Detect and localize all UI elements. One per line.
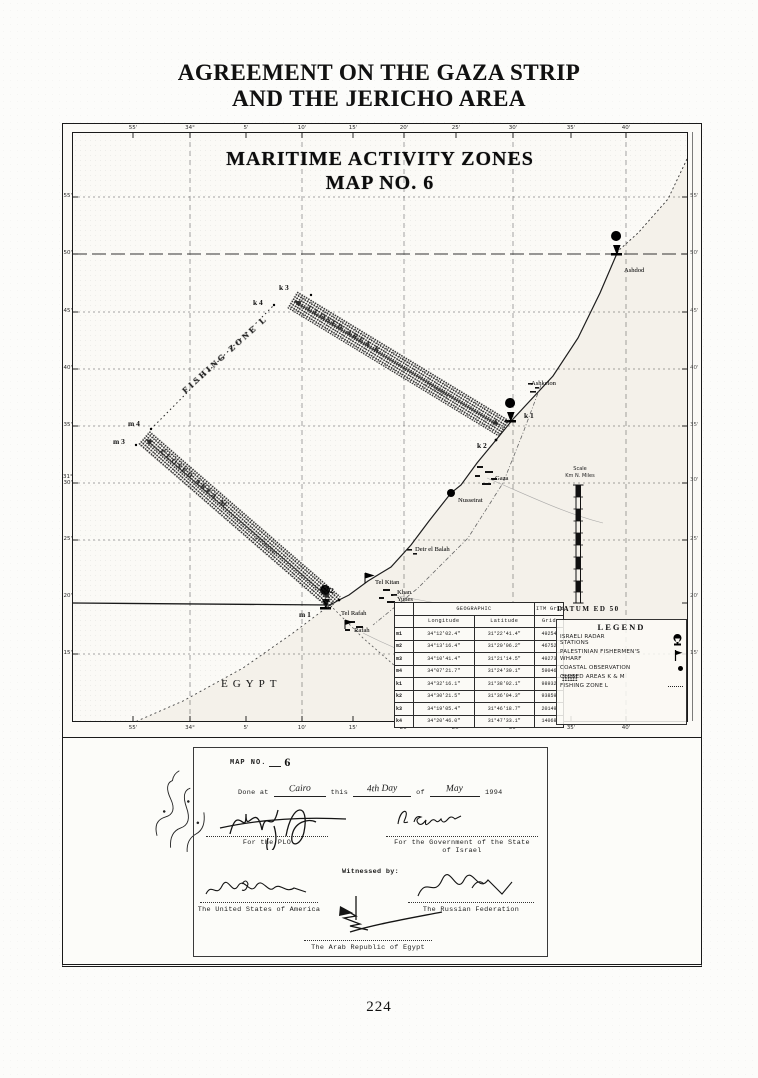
map-no-line: MAP NO. 6: [230, 757, 290, 767]
place-ashkelon: Ashkelon: [531, 380, 556, 387]
radar-station-icon: [672, 634, 683, 646]
coords-header-geographic: GEOGRAPHIC: [414, 603, 535, 616]
signature-panel: MAP NO. 6 Done at Cairo this 4th Day of …: [62, 737, 702, 967]
of-text: of: [416, 789, 425, 797]
handwritten-month: May: [446, 785, 463, 795]
axis-tick: 55': [129, 125, 138, 131]
egypt-maritime-line: [73, 603, 330, 605]
coord-cell: 34°10'41.4": [414, 653, 475, 666]
map-title-line2: MAP NO. 6: [73, 171, 687, 195]
fishing-zone-line-icon: [668, 686, 683, 687]
map-title: MARITIME ACTIVITY ZONES MAP NO. 6: [73, 147, 687, 195]
arrowhead-icon: [492, 419, 503, 429]
coord-cell: m3: [395, 653, 414, 666]
axis-tick: 40': [622, 725, 631, 731]
axis-tick: 34°: [185, 725, 195, 731]
map-no-blank: [269, 766, 281, 767]
legend-item-observation: COASTAL OBSERVATION: [560, 665, 683, 671]
legend-title: LEGEND: [560, 622, 683, 632]
coord-subheader: Longitude: [414, 615, 475, 628]
coord-cell: m1: [395, 628, 414, 641]
year-text: 1994: [485, 789, 503, 797]
coords-header-row: GEOGRAPHIC ITM Grid: [395, 603, 564, 616]
coord-row: k134°32'16.1"31°38'02.1"98932: [395, 678, 564, 691]
axis-tick: 15': [63, 650, 72, 656]
axis-tick: 30': [509, 125, 518, 131]
place-deir-el-balah: Deir el Balah: [415, 546, 450, 553]
coord-cell: m4: [395, 665, 414, 678]
axis-tick: 15': [349, 125, 358, 131]
axis-tick: 35': [63, 422, 72, 428]
legend-label: ISRAELI RADAR STATIONS: [560, 634, 605, 647]
legend-item-fishing-zone: FISHING ZONE L: [560, 683, 683, 689]
coord-cell: m2: [395, 640, 414, 653]
signature-rabin: [392, 804, 482, 832]
map-no-label: MAP NO.: [230, 759, 266, 767]
axis-tick: 10': [298, 725, 307, 731]
axis-tick: 25': [452, 125, 461, 131]
coord-cell: 31°36'04.3": [474, 690, 535, 703]
axis-tick: 35': [567, 725, 576, 731]
coord-cell: k3: [395, 703, 414, 716]
place-tel-kitan: Tel Kitan: [375, 579, 399, 586]
coord-cell: k2: [395, 690, 414, 703]
coord-cell: 31°20'06.2": [474, 640, 535, 653]
legend-label: COASTAL OBSERVATION: [560, 665, 630, 671]
axis-tick: 25': [63, 536, 72, 542]
point-m2: m 2: [322, 586, 334, 595]
axis-tick: 10': [298, 125, 307, 131]
coord-subheader: Latitude: [474, 615, 535, 628]
observation-dot-icon: [447, 489, 455, 497]
day-blank: 4th Day: [353, 778, 411, 797]
neatline-double: [692, 132, 693, 721]
axis-tick: 20': [63, 593, 72, 599]
legend-label: PALESTINIAN FISHERMEN'S WHARF: [560, 649, 640, 662]
place-nusseirat: Nusseirat: [458, 497, 483, 504]
coord-cell: 31°24'30.1": [474, 665, 535, 678]
coord-cell: [395, 615, 414, 628]
document-page: AGREEMENT ON THE GAZA STRIP AND THE JERI…: [0, 0, 758, 1078]
document-title-line2: AND THE JERICHO AREA: [0, 86, 758, 112]
axis-tick: 15': [349, 725, 358, 731]
egypt-label: The Arab Republic of Egypt: [302, 944, 434, 952]
signature-line: [386, 836, 538, 837]
coord-row: m434°07'21.7"31°24'30.1"59046: [395, 665, 564, 678]
plo-label: For the PLO: [212, 839, 322, 847]
coord-cell: 34°07'21.7": [414, 665, 475, 678]
point-k4: k 4: [253, 298, 263, 307]
signature-line: [304, 940, 432, 941]
coord-cell: [395, 603, 414, 616]
axis-tick: 55': [63, 193, 72, 199]
signature-box: MAP NO. 6 Done at Cairo this 4th Day of …: [193, 747, 548, 957]
usa-label: The United States of America: [196, 906, 322, 914]
coord-row: m334°10'41.4"31°21'14.5"49273: [395, 653, 564, 666]
axis-tick: 40': [622, 125, 631, 131]
signature-line: [200, 902, 318, 903]
point-m3: m 3: [113, 437, 125, 446]
point-m4: m 4: [128, 419, 140, 428]
coord-cell: 34°20'46.0": [414, 715, 475, 728]
legend-item-closed-areas: CLOSED AREAS K & M: [560, 674, 683, 680]
legend-label: FISHING ZONE L: [560, 683, 608, 689]
coord-row: k234°30'21.5"31°36'04.3"93859: [395, 690, 564, 703]
map-title-line1: MARITIME ACTIVITY ZONES: [73, 147, 687, 171]
place-gaza: Gaza: [495, 475, 508, 482]
legend-item-radar: ISRAELI RADAR STATIONS: [560, 634, 683, 647]
document-title-line1: AGREEMENT ON THE GAZA STRIP: [0, 60, 758, 86]
signature-usa: [202, 878, 312, 902]
map-frame: 55' 34° 5' 10' 15' 20' 25' 30' 35' 40' 5…: [62, 123, 702, 739]
coord-row: k434°20'46.0"31°47'33.1"14068: [395, 715, 564, 728]
coord-row: m234°13'16.4"31°20'06.2"46752: [395, 640, 564, 653]
coord-cell: 34°32'16.1": [414, 678, 475, 691]
signature-egypt: [306, 886, 446, 938]
coord-cell: 34°19'05.4": [414, 703, 475, 716]
document-title: AGREEMENT ON THE GAZA STRIP AND THE JERI…: [0, 60, 758, 112]
point-k2: k 2: [477, 441, 487, 450]
place-egypt: EGYPT: [221, 681, 281, 688]
axis-tick: 55': [129, 725, 138, 731]
israel-label: For the Government of the State of Israe…: [386, 839, 538, 855]
coordinates-table: GEOGRAPHIC ITM Grid Longitude Latitude G…: [394, 602, 564, 728]
place-rafah: Rafah: [354, 627, 370, 634]
point-m1: m 1: [299, 610, 311, 619]
axis-tick: 5': [243, 125, 248, 131]
legend-box: LEGEND ISRAELI RADAR STATIONS PALESTINIA…: [556, 619, 687, 725]
place-khan-yunes: Khan Yunes: [397, 589, 413, 603]
coord-cell: k1: [395, 678, 414, 691]
map-no-value: 6: [284, 757, 290, 767]
coord-cell: 31°47'33.1": [474, 715, 535, 728]
place-tel-rafah: Tel Rafah: [341, 610, 366, 617]
axis-tick: 20': [400, 125, 409, 131]
place-ashdod: Ashdod: [624, 267, 644, 274]
coord-cell: 34°12'02.4": [414, 628, 475, 641]
scale-units: Km N. Miles: [557, 474, 603, 480]
point-k1: k 1: [524, 411, 534, 420]
observation-dot-icon: [678, 666, 683, 671]
coord-row: m134°12'02.4"31°22'41.4"49254: [395, 628, 564, 641]
coord-cell: 34°13'16.4": [414, 640, 475, 653]
axis-tick: 45': [63, 308, 72, 314]
axis-tick: 34°: [185, 125, 195, 131]
datum-note: DATUM ED 50: [557, 605, 620, 613]
coord-cell: 31°22'41.4": [474, 628, 535, 641]
coords-subheader-row: Longitude Latitude Grid: [395, 615, 564, 628]
legend-item-wharf: PALESTINIAN FISHERMEN'S WHARF: [560, 649, 683, 662]
coord-cell: 31°46'18.7": [474, 703, 535, 716]
axis-tick: 40': [63, 365, 72, 371]
coord-cell: 31°21'14.5": [474, 653, 535, 666]
scale-title: Scale: [565, 467, 595, 473]
wharf-icon: [674, 650, 683, 661]
coord-row: k334°19'05.4"31°46'18.7"20149: [395, 703, 564, 716]
map-canvas: MARITIME ACTIVITY ZONES MAP NO. 6 CLOSED…: [72, 132, 688, 722]
signature-line: [206, 836, 328, 837]
month-blank: May: [430, 778, 480, 797]
coord-cell: 31°38'02.1": [474, 678, 535, 691]
page-number: 224: [0, 999, 758, 1016]
closed-area-swatch: [562, 674, 578, 681]
axis-tick: 50': [63, 250, 72, 256]
coord-cell: 34°30'21.5": [414, 690, 475, 703]
axis-tick: 31° 30': [63, 474, 72, 486]
handwritten-day: 4th Day: [367, 784, 398, 794]
coord-cell: k4: [395, 715, 414, 728]
axis-tick: 35': [567, 125, 576, 131]
point-k3: k 3: [279, 283, 289, 292]
axis-tick: 5': [243, 725, 248, 731]
